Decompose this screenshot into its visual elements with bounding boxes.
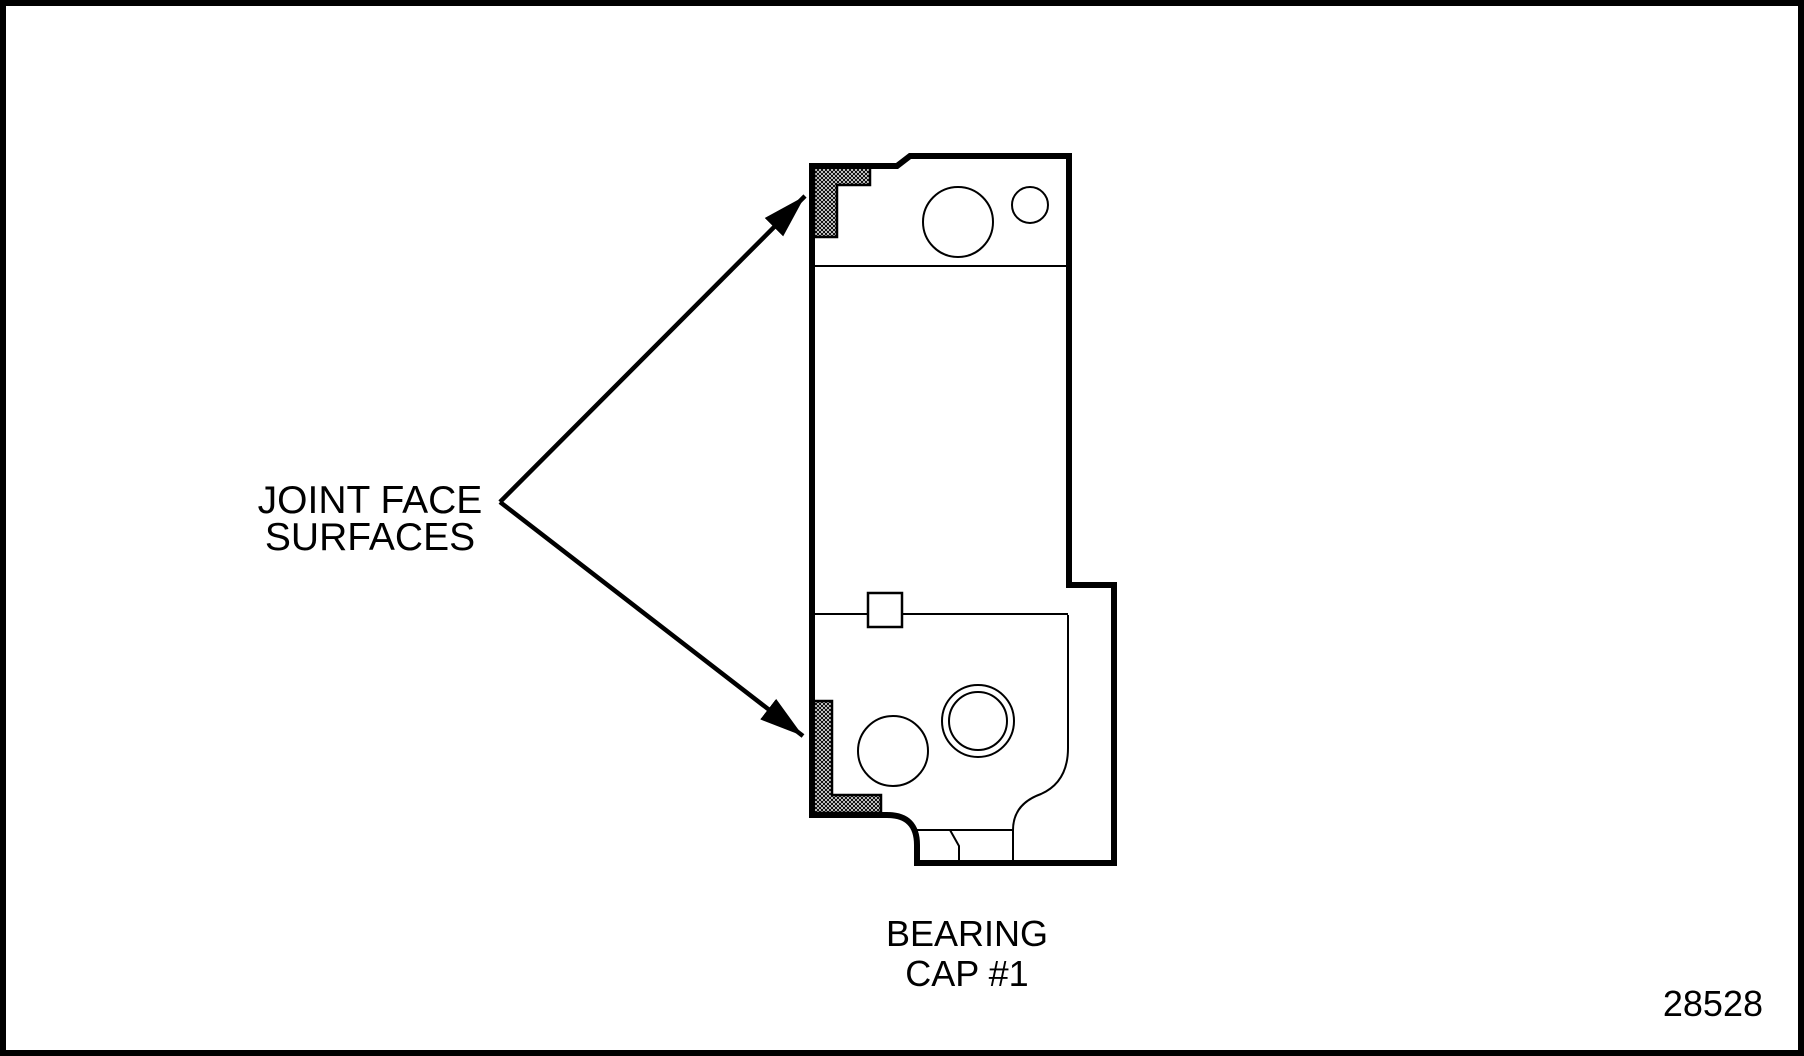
leader-line-bottom bbox=[500, 502, 803, 736]
dowel-square bbox=[868, 593, 902, 627]
part-label-line2: CAP #1 bbox=[905, 953, 1028, 994]
callout-label-line2: SURFACES bbox=[265, 516, 475, 559]
bearing-cap-figure: JOINT FACE SURFACES BEARING CAP #1 28528 bbox=[0, 0, 1804, 1056]
figure-number: 28528 bbox=[1663, 983, 1763, 1024]
bearing-cap-outline bbox=[812, 156, 1114, 863]
leader-arrows bbox=[500, 196, 805, 736]
bearing-cap-part bbox=[812, 156, 1114, 863]
leader-line-top bbox=[500, 196, 805, 502]
part-label-line1: BEARING bbox=[886, 913, 1048, 954]
figure-canvas: JOINT FACE SURFACES BEARING CAP #1 28528 bbox=[0, 0, 1804, 1056]
